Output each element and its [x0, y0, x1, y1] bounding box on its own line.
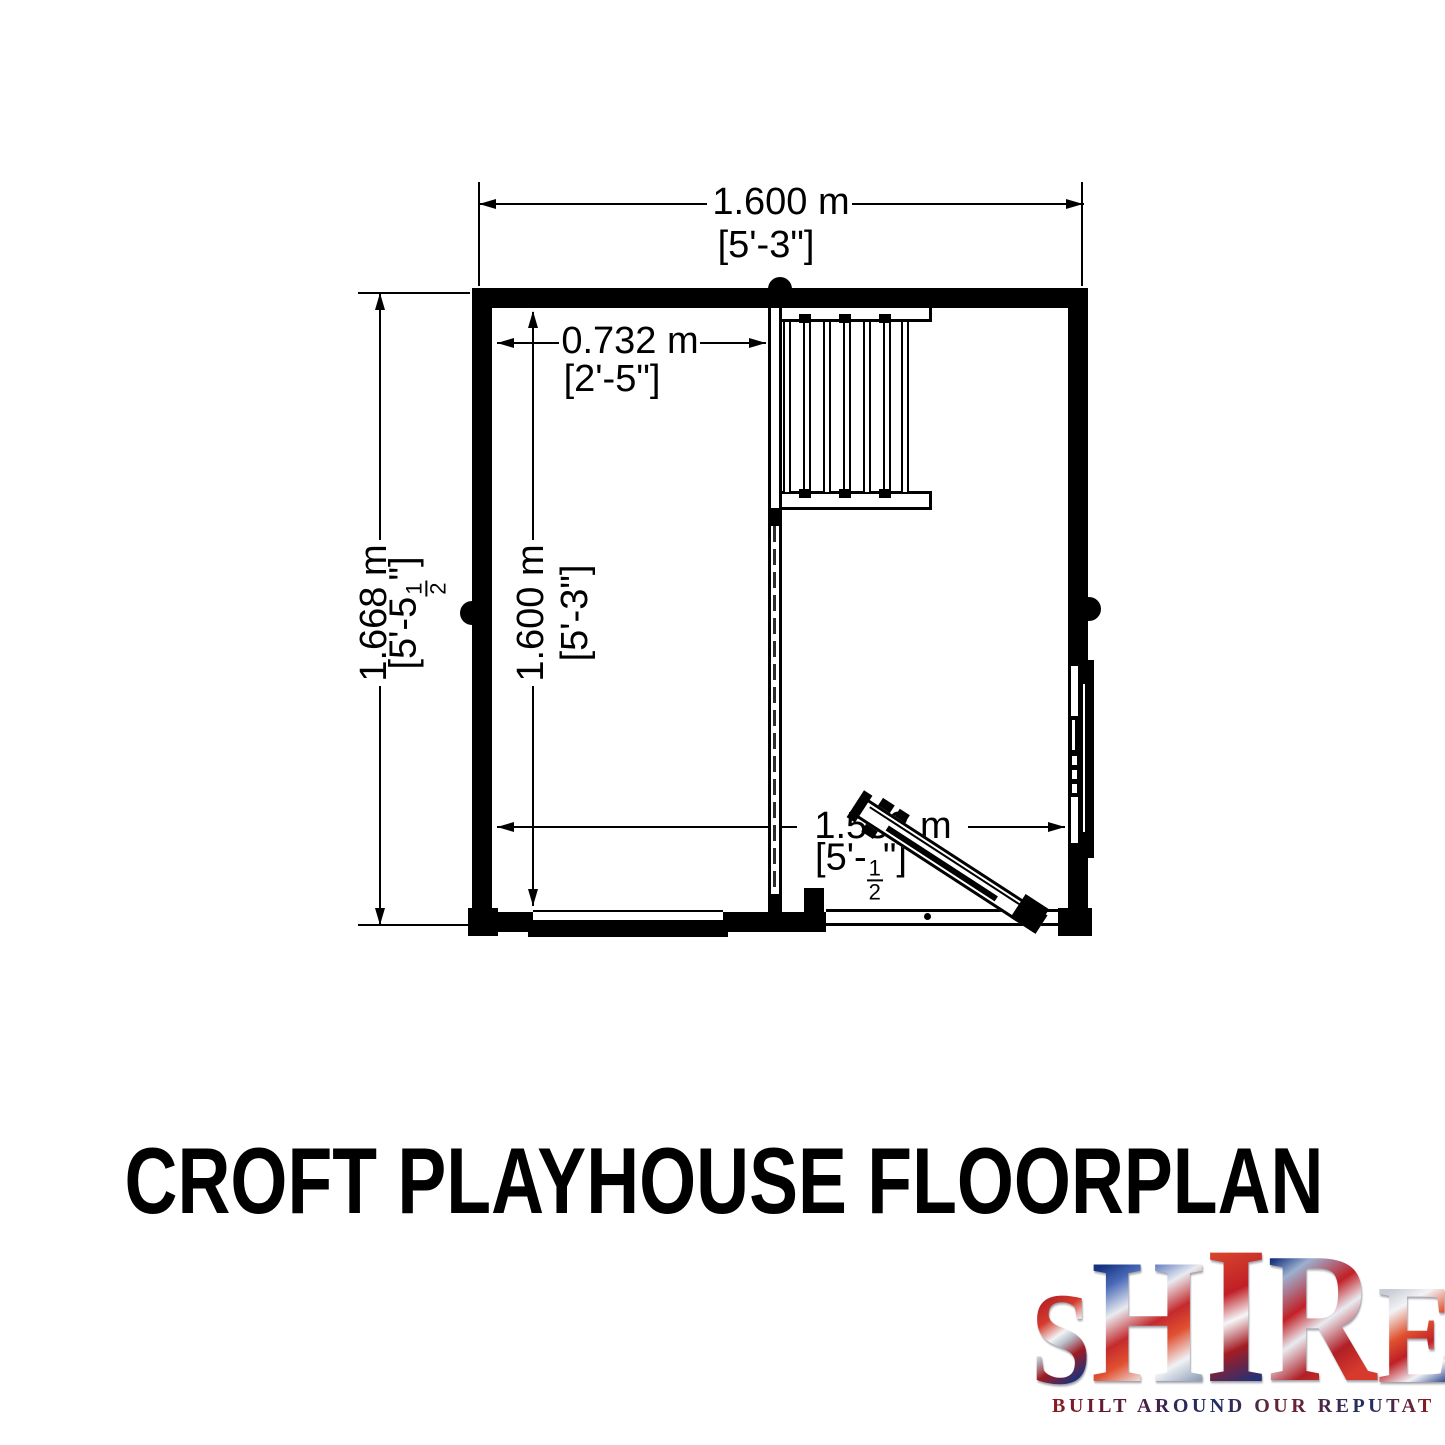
dimension-internal-width-imperial: [5'-12"] [815, 838, 907, 903]
dimension-overall-width-metric: 1.600 m [712, 183, 849, 221]
right-window-glazing [1071, 797, 1078, 843]
partition-wall-dashed-line [773, 526, 776, 898]
dimension-line [479, 203, 707, 205]
arrowhead [375, 908, 385, 925]
arrowhead [479, 199, 496, 209]
ladder-rung [883, 320, 891, 494]
dimension-line [497, 826, 797, 828]
partition-wall-block [768, 508, 782, 526]
dimension-line [379, 686, 381, 925]
floorplan-page: 1.600 m [5'-3"] 1.668 m [5'-512"] 1.600 … [0, 0, 1445, 1445]
ladder-rung [901, 320, 909, 494]
arrowhead [749, 338, 766, 348]
dimension-line [532, 686, 534, 906]
right-window-frame-line [1083, 684, 1085, 832]
right-window-dash [1072, 720, 1075, 750]
dimension-overall-width-imperial: [5'-3"] [718, 226, 815, 264]
right-window-dash [1072, 784, 1077, 793]
wall-marker-dot-left [460, 601, 484, 625]
right-window-dash [1072, 770, 1077, 779]
logo-letter-s: S [1031, 1291, 1091, 1387]
wall-marker-dot-top [768, 277, 792, 301]
logo-letter-i: I [1205, 1244, 1268, 1387]
logo-letter-r: R [1267, 1251, 1377, 1387]
arrowhead [497, 822, 514, 832]
bottom-window-sill [528, 922, 728, 937]
threshold-dot [924, 913, 931, 920]
ladder-rung-cap [879, 314, 891, 323]
shire-logo: S H I R E BUILT AROUND OUR REPUTATION [1052, 1244, 1434, 1418]
ladder-rung-cap [799, 314, 811, 323]
ladder-rung [823, 320, 831, 494]
page-title: CROFT PLAYHOUSE FLOORPLAN [125, 1127, 1324, 1235]
ladder-rung-cap [799, 489, 811, 498]
logo-letter-h: H [1091, 1257, 1205, 1387]
door-jamb [804, 888, 824, 914]
shire-logo-letters: S H I R E [1086, 1244, 1399, 1387]
arrowhead [1066, 199, 1083, 209]
dimension-line [852, 203, 1084, 205]
extension-line [1081, 182, 1083, 286]
extension-line [478, 182, 480, 286]
dimension-overall-depth-imperial: [5'-512"] [384, 556, 449, 669]
dimension-left-room-width-metric: 0.732 m [561, 322, 698, 360]
partition-wall-block [768, 894, 782, 912]
bottom-window-glazing [533, 910, 723, 922]
logo-letter-e: E [1377, 1283, 1445, 1387]
ladder-rung-cap [879, 489, 891, 498]
wall-bottom-right-corner [1058, 908, 1092, 936]
dimension-internal-depth-metric: 1.600 m [512, 544, 550, 681]
dimension-left-room-width-imperial: [2'-5"] [564, 360, 661, 398]
dimension-line [379, 293, 381, 540]
ladder-rung-cap [839, 489, 851, 498]
ladder-rung-cap [839, 314, 851, 323]
wall-bottom-segment [723, 912, 826, 932]
dimension-internal-depth-imperial: [5'-3"] [556, 565, 594, 662]
arrowhead [1048, 822, 1065, 832]
arrowhead [528, 311, 538, 328]
ladder-rung [843, 320, 851, 494]
wall-marker-dot-right [1077, 597, 1101, 621]
ladder-rung [783, 320, 791, 494]
arrowhead [497, 338, 514, 348]
right-window-glazing [1071, 666, 1078, 716]
ladder-rung [803, 320, 811, 494]
ladder-rung [863, 320, 871, 494]
dimension-line [532, 312, 534, 540]
arrowhead [375, 293, 385, 310]
right-window-dash [1072, 756, 1077, 765]
arrowhead [528, 889, 538, 906]
